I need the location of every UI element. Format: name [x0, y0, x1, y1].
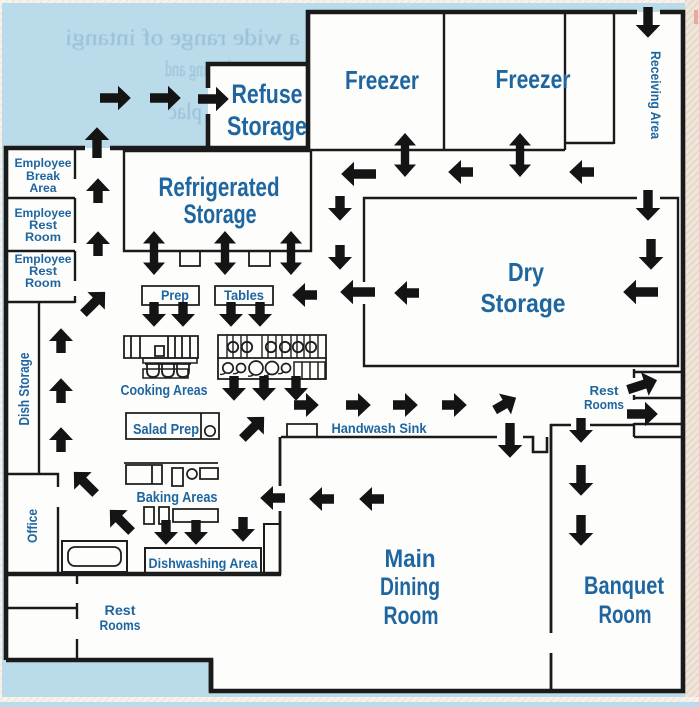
svg-text:Prep: Prep [161, 287, 189, 303]
svg-text:Rooms: Rooms [100, 618, 141, 633]
svg-text:Storage: Storage [481, 288, 566, 318]
svg-text:a wide range of intangi: a wide range of intangi [65, 25, 300, 50]
svg-text:Room: Room [25, 276, 61, 290]
svg-text:Dining: Dining [380, 573, 440, 601]
svg-text:Area: Area [30, 181, 57, 195]
svg-text:Tables: Tables [224, 287, 264, 303]
svg-text:Rest: Rest [590, 383, 620, 398]
svg-text:Salad Prep: Salad Prep [133, 421, 199, 438]
svg-text:Receiving Area: Receiving Area [648, 51, 663, 139]
svg-text:Rooms: Rooms [584, 397, 624, 412]
svg-text:Room: Room [25, 230, 61, 244]
svg-text:Banquet: Banquet [584, 572, 665, 600]
svg-text:Freezer: Freezer [345, 65, 419, 95]
svg-text:Dishwashing Area: Dishwashing Area [149, 556, 258, 571]
svg-text:Cooking Areas: Cooking Areas [121, 383, 208, 399]
svg-text:Office: Office [24, 509, 40, 543]
svg-text:Room: Room [384, 602, 439, 630]
svg-text:Storage: Storage [184, 199, 257, 229]
svg-text:Rest: Rest [105, 603, 137, 618]
svg-text:Dish Storage: Dish Storage [16, 353, 33, 426]
svg-text:Main: Main [385, 545, 436, 573]
svg-text:Freezer: Freezer [496, 64, 571, 94]
svg-text:Employee: Employee [15, 156, 72, 170]
svg-text:Dry: Dry [508, 257, 544, 287]
svg-text:Baking Areas: Baking Areas [137, 490, 218, 506]
svg-text:Refuse: Refuse [232, 79, 303, 109]
svg-text:Room: Room [599, 601, 652, 629]
svg-text:Handwash Sink: Handwash Sink [332, 421, 427, 436]
svg-text:Storage: Storage [227, 111, 307, 141]
svg-text:Refrigerated: Refrigerated [159, 172, 280, 202]
